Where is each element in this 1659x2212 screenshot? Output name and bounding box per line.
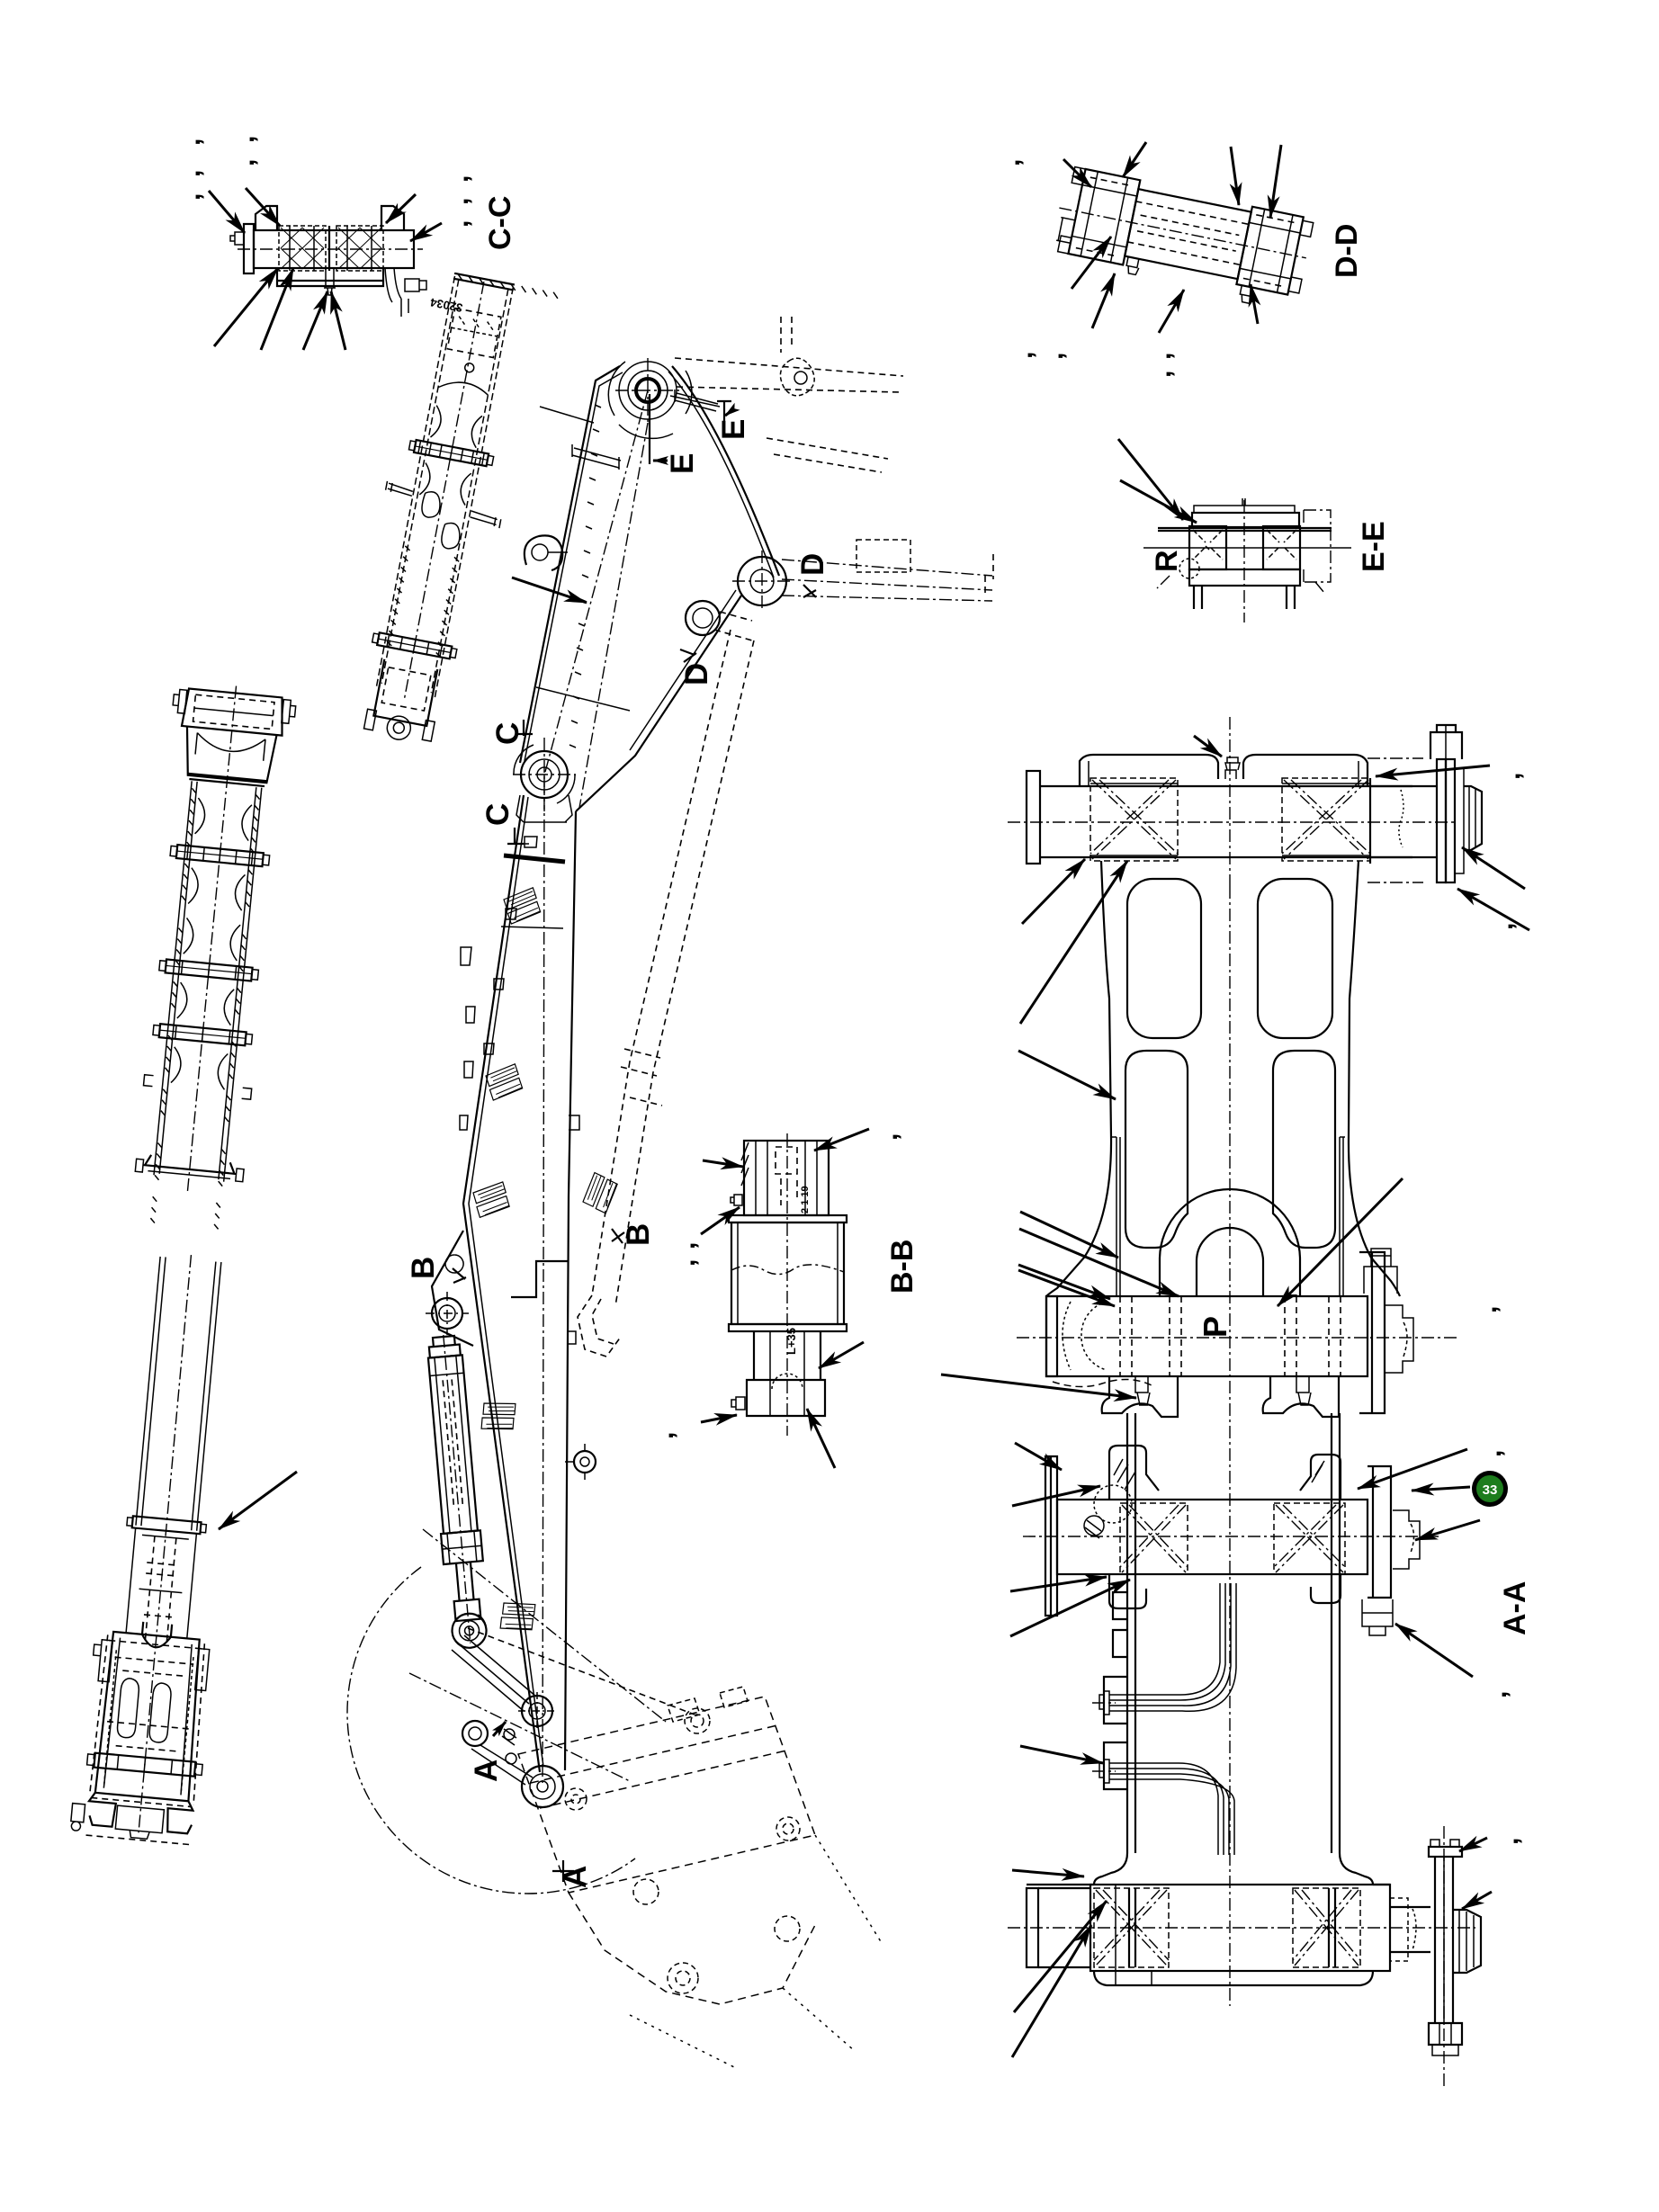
svg-text:,: , — [1494, 1838, 1524, 1845]
svg-text:E: E — [665, 453, 700, 474]
svg-text:,: , — [671, 1259, 701, 1267]
svg-text:,: , — [176, 170, 206, 177]
svg-text:,: , — [1477, 1450, 1507, 1457]
svg-text:B: B — [621, 1223, 656, 1246]
svg-text:B: B — [406, 1257, 441, 1279]
svg-text:D-D: D-D — [1330, 224, 1364, 278]
svg-text:,: , — [1473, 1306, 1502, 1313]
svg-text:,: , — [176, 139, 206, 146]
svg-text:E-E: E-E — [1357, 521, 1391, 572]
svg-text:A-A: A-A — [1498, 1581, 1532, 1635]
svg-text:C-C: C-C — [483, 196, 517, 250]
svg-text:33: 33 — [1483, 1482, 1498, 1498]
svg-text:,: , — [444, 198, 474, 205]
svg-text:,: , — [230, 136, 260, 143]
svg-text:,: , — [1009, 352, 1038, 359]
svg-text:L+35: L+35 — [785, 1328, 798, 1355]
svg-text:,: , — [996, 159, 1026, 166]
svg-text:,: , — [650, 1432, 679, 1439]
svg-text:,: , — [671, 1242, 701, 1249]
svg-text:C: C — [480, 803, 516, 826]
svg-text:,: , — [874, 1133, 903, 1141]
svg-text:,: , — [1147, 371, 1177, 378]
svg-text:,: , — [1039, 353, 1069, 360]
svg-text:,: , — [1147, 353, 1177, 360]
svg-text:,: , — [1489, 923, 1519, 930]
svg-text:,: , — [230, 159, 260, 166]
svg-text:A: A — [469, 1760, 504, 1782]
svg-text:R: R — [1150, 550, 1184, 572]
svg-text:E: E — [716, 419, 751, 440]
svg-text:,: , — [1496, 773, 1526, 780]
svg-text:D: D — [795, 553, 830, 576]
svg-text:B-B: B-B — [885, 1240, 919, 1294]
svg-text:,: , — [176, 193, 206, 201]
svg-text:D: D — [679, 663, 714, 685]
svg-text:,: , — [444, 220, 474, 228]
svg-text:,: , — [1483, 1691, 1512, 1698]
svg-text:P: P — [1197, 1316, 1233, 1338]
svg-text:2 1 19: 2 1 19 — [800, 1186, 811, 1213]
svg-text:,: , — [444, 175, 474, 183]
